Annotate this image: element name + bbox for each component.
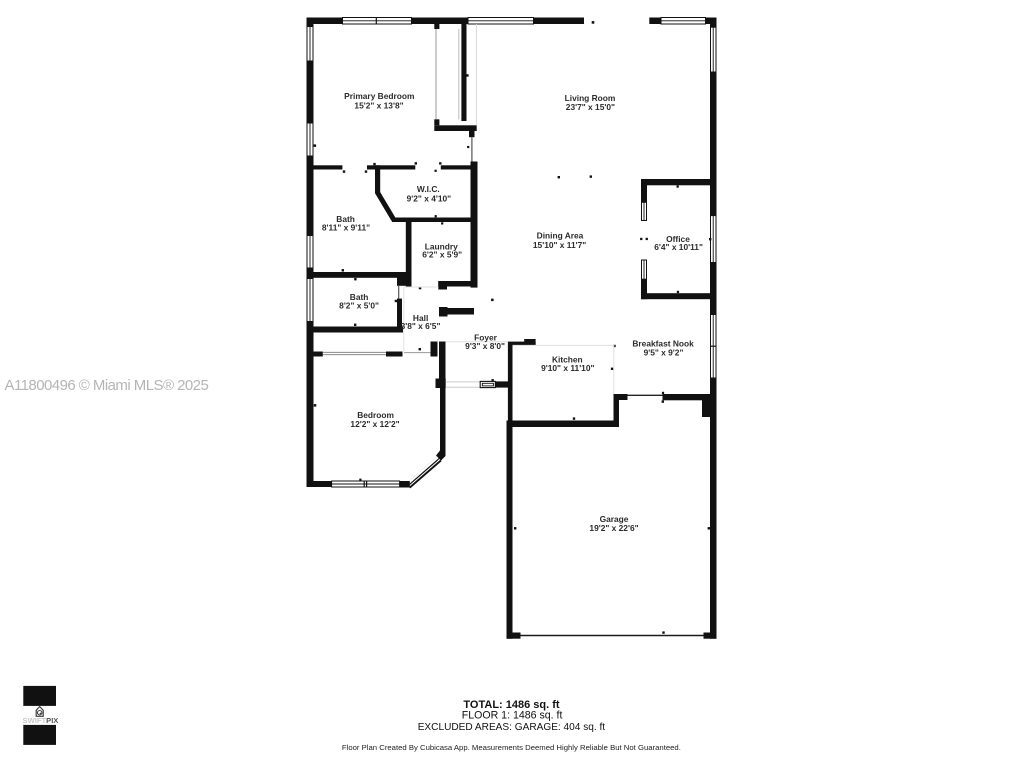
svg-text:A11800496 © Miami MLS® 2025: A11800496 © Miami MLS® 2025 [5, 377, 209, 394]
svg-text:6'4" x 10'11": 6'4" x 10'11" [654, 242, 703, 252]
svg-text:9'2" x 4'10": 9'2" x 4'10" [407, 194, 452, 204]
svg-text:19'2" x 22'6": 19'2" x 22'6" [589, 523, 638, 533]
svg-text:6'2" x 5'9": 6'2" x 5'9" [422, 250, 462, 260]
svg-text:8'11" x 9'11": 8'11" x 9'11" [322, 222, 370, 232]
svg-text:EXCLUDED AREAS: GARAGE: 404 sq: EXCLUDED AREAS: GARAGE: 404 sq. ft [418, 722, 606, 733]
svg-text:Floor Plan Created By Cubicasa: Floor Plan Created By Cubicasa App. Meas… [342, 743, 681, 752]
svg-text:12'2" x 12'2": 12'2" x 12'2" [350, 419, 399, 429]
svg-text:9'3" x 8'0": 9'3" x 8'0" [465, 341, 505, 351]
svg-text:9'10" x 11'10": 9'10" x 11'10" [541, 363, 594, 373]
svg-text:15'10" x 11'7": 15'10" x 11'7" [533, 240, 586, 250]
svg-text:3'8" x 6'5": 3'8" x 6'5" [401, 321, 441, 331]
svg-text:FLOOR 1: 1486 sq. ft: FLOOR 1: 1486 sq. ft [462, 710, 563, 722]
svg-text:Primary Bedroom: Primary Bedroom [344, 91, 414, 101]
svg-text:9'5" x 9'2": 9'5" x 9'2" [644, 348, 684, 358]
svg-text:SWIFTPIX: SWIFTPIX [23, 716, 59, 725]
svg-text:8'2" x 5'0": 8'2" x 5'0" [339, 300, 379, 310]
svg-text:15'2" x 13'8": 15'2" x 13'8" [354, 101, 403, 111]
svg-text:23'7" x 15'0": 23'7" x 15'0" [566, 102, 615, 112]
